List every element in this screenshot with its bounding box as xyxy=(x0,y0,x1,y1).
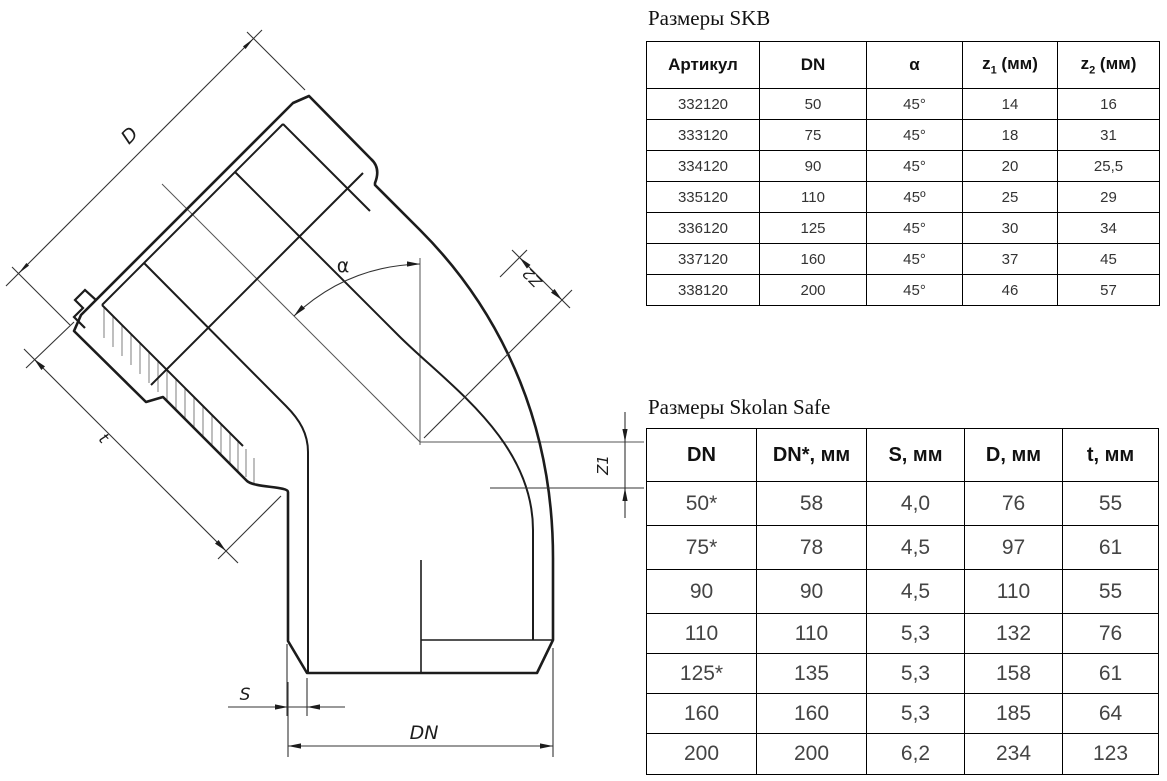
cell-z1: 37 xyxy=(963,244,1058,275)
cell-t: 55 xyxy=(1063,482,1159,526)
cell-artikul: 334120 xyxy=(647,151,760,182)
dim-t-ext-top xyxy=(26,322,74,368)
cell-z2: 25,5 xyxy=(1058,151,1160,182)
table-row: 332120 50 45° 14 16 xyxy=(647,89,1160,120)
arrow-s-left xyxy=(275,704,288,709)
arrow-d-top xyxy=(243,39,254,50)
cell-dn: 50 xyxy=(760,89,867,120)
label-t: t xyxy=(95,429,113,447)
cell-s: 5,3 xyxy=(867,694,965,734)
cell-dnstar: 110 xyxy=(757,614,867,654)
cell-z2: 57 xyxy=(1058,275,1160,306)
cell-z1: 30 xyxy=(963,213,1058,244)
cell-dnstar: 160 xyxy=(757,694,867,734)
dim-z2-ext-b xyxy=(424,290,572,438)
dimension-arrowheads xyxy=(19,39,628,749)
cell-alpha: 45° xyxy=(867,275,963,306)
cell-s: 4,5 xyxy=(867,526,965,570)
cell-dn: 75 xyxy=(760,120,867,151)
cell-z1: 20 xyxy=(963,151,1058,182)
cell-z1: 18 xyxy=(963,120,1058,151)
table-row: 200 200 6,2 234 123 xyxy=(647,734,1159,775)
table-row: 50* 58 4,0 76 55 xyxy=(647,482,1159,526)
skb-header-z2: z2 (мм) xyxy=(1058,42,1160,89)
cell-d: 132 xyxy=(965,614,1063,654)
cell-dn: 90 xyxy=(647,570,757,614)
table-row: 337120 160 45° 37 45 xyxy=(647,244,1160,275)
cell-artikul: 338120 xyxy=(647,275,760,306)
cell-d: 97 xyxy=(965,526,1063,570)
cell-dnstar: 90 xyxy=(757,570,867,614)
dim-t-ext-bottom xyxy=(218,496,281,559)
cell-dnstar: 58 xyxy=(757,482,867,526)
skb-dimensions-table: Артикул DN α z1 (мм) z2 (мм) 332120 50 4… xyxy=(646,41,1160,306)
cell-t: 61 xyxy=(1063,654,1159,694)
table-row: 125* 135 5,3 158 61 xyxy=(647,654,1159,694)
cell-alpha: 45° xyxy=(867,213,963,244)
cell-dn: 200 xyxy=(760,275,867,306)
cell-dn: 125 xyxy=(760,213,867,244)
table-row: 90 90 4,5 110 55 xyxy=(647,570,1159,614)
arrow-dn-right xyxy=(540,743,553,748)
cell-dnstar: 200 xyxy=(757,734,867,775)
elbow-outline xyxy=(74,96,553,673)
elbow-technical-drawing: D t α Z2 Z1 S DN xyxy=(0,0,648,781)
table-row: 335120 110 45º 25 29 xyxy=(647,182,1160,213)
skolan-table-title: Размеры Skolan Safe xyxy=(648,395,830,420)
label-s: S xyxy=(240,685,251,705)
cell-dn: 110 xyxy=(760,182,867,213)
centerlines xyxy=(162,184,644,445)
cell-dn: 200 xyxy=(647,734,757,775)
cell-z2: 29 xyxy=(1058,182,1160,213)
arrow-alpha-left xyxy=(294,305,305,316)
cell-alpha: 45° xyxy=(867,89,963,120)
skolan-header-s: S, мм xyxy=(867,429,965,482)
cell-dn: 50* xyxy=(647,482,757,526)
cell-z2: 34 xyxy=(1058,213,1160,244)
skolan-dimensions-table: DN DN*, мм S, мм D, мм t, мм 50* 58 4,0 … xyxy=(646,428,1159,775)
cell-alpha: 45° xyxy=(867,151,963,182)
cell-z1: 14 xyxy=(963,89,1058,120)
cell-d: 76 xyxy=(965,482,1063,526)
arrow-dn-left xyxy=(288,743,301,748)
cell-d: 185 xyxy=(965,694,1063,734)
dim-d-ext-left xyxy=(12,267,70,325)
label-alpha: α xyxy=(337,255,350,277)
bore-left xyxy=(144,263,308,672)
table-row: 110 110 5,3 132 76 xyxy=(647,614,1159,654)
cell-t: 76 xyxy=(1063,614,1159,654)
cell-dn: 160 xyxy=(647,694,757,734)
cell-s: 5,3 xyxy=(867,614,965,654)
arrow-d-bottom xyxy=(19,263,30,274)
cell-artikul: 333120 xyxy=(647,120,760,151)
skb-header-alpha: α xyxy=(867,42,963,89)
table-row: 336120 125 45° 30 34 xyxy=(647,213,1160,244)
cell-z1: 46 xyxy=(963,275,1058,306)
cell-alpha: 45º xyxy=(867,182,963,213)
dim-alpha-arc xyxy=(294,264,420,316)
arrow-alpha-right xyxy=(407,261,420,266)
table-row: 333120 75 45° 18 31 xyxy=(647,120,1160,151)
table-row: 338120 200 45° 46 57 xyxy=(647,275,1160,306)
arrow-z1-bottom xyxy=(622,488,627,501)
skolan-header-dn: DN xyxy=(647,429,757,482)
cell-dn: 90 xyxy=(760,151,867,182)
cell-dn: 110 xyxy=(647,614,757,654)
cell-dn: 125* xyxy=(647,654,757,694)
arrow-z1-top xyxy=(622,429,627,442)
cell-artikul: 337120 xyxy=(647,244,760,275)
cell-d: 234 xyxy=(965,734,1063,775)
cell-dnstar: 78 xyxy=(757,526,867,570)
skb-header-artikul: Артикул xyxy=(647,42,760,89)
cell-alpha: 45° xyxy=(867,120,963,151)
bell-inner-right xyxy=(283,124,370,211)
dim-d-ext-right xyxy=(247,32,305,90)
cell-s: 6,2 xyxy=(867,734,965,775)
cell-d: 110 xyxy=(965,570,1063,614)
cell-artikul: 336120 xyxy=(647,213,760,244)
cell-dnstar: 135 xyxy=(757,654,867,694)
cell-z2: 16 xyxy=(1058,89,1160,120)
cell-dn: 75* xyxy=(647,526,757,570)
label-d: D xyxy=(117,123,143,149)
label-z2: Z2 xyxy=(519,264,546,291)
skolan-header-row: DN DN*, мм S, мм D, мм t, мм xyxy=(647,429,1159,482)
table-row: 160 160 5,3 185 64 xyxy=(647,694,1159,734)
cell-artikul: 335120 xyxy=(647,182,760,213)
cell-d: 158 xyxy=(965,654,1063,694)
table-row: 334120 90 45° 20 25,5 xyxy=(647,151,1160,182)
cell-t: 123 xyxy=(1063,734,1159,775)
elbow-internal-edges xyxy=(74,124,553,673)
catalog-sheet: D t α Z2 Z1 S DN Размеры SKB Артикул DN … xyxy=(0,0,1167,781)
cell-z1: 25 xyxy=(963,182,1058,213)
cell-s: 4,0 xyxy=(867,482,965,526)
cell-s: 4,5 xyxy=(867,570,965,614)
bell-inner-left xyxy=(102,305,243,446)
arrow-s-right xyxy=(307,704,320,709)
cell-t: 64 xyxy=(1063,694,1159,734)
cell-t: 55 xyxy=(1063,570,1159,614)
cell-artikul: 332120 xyxy=(647,89,760,120)
label-dn: DN xyxy=(410,722,439,744)
skolan-header-dnstar: DN*, мм xyxy=(757,429,867,482)
skolan-header-t: t, мм xyxy=(1063,429,1159,482)
skolan-header-d: D, мм xyxy=(965,429,1063,482)
dimension-labels: D t α Z2 Z1 S DN xyxy=(95,123,612,744)
cell-t: 61 xyxy=(1063,526,1159,570)
skb-table-title: Размеры SKB xyxy=(648,6,770,31)
dim-z2-ext-a xyxy=(500,250,527,277)
cell-z2: 31 xyxy=(1058,120,1160,151)
skb-header-dn: DN xyxy=(760,42,867,89)
cell-z2: 45 xyxy=(1058,244,1160,275)
label-z1: Z1 xyxy=(594,455,612,476)
cell-dn: 160 xyxy=(760,244,867,275)
cell-alpha: 45° xyxy=(867,244,963,275)
cell-s: 5,3 xyxy=(867,654,965,694)
dim-d-line xyxy=(6,30,262,286)
skb-header-row: Артикул DN α z1 (мм) z2 (мм) xyxy=(647,42,1160,89)
section-hatching xyxy=(104,307,254,483)
skb-header-z1: z1 (мм) xyxy=(963,42,1058,89)
table-row: 75* 78 4,5 97 61 xyxy=(647,526,1159,570)
dim-t-line xyxy=(24,349,238,563)
